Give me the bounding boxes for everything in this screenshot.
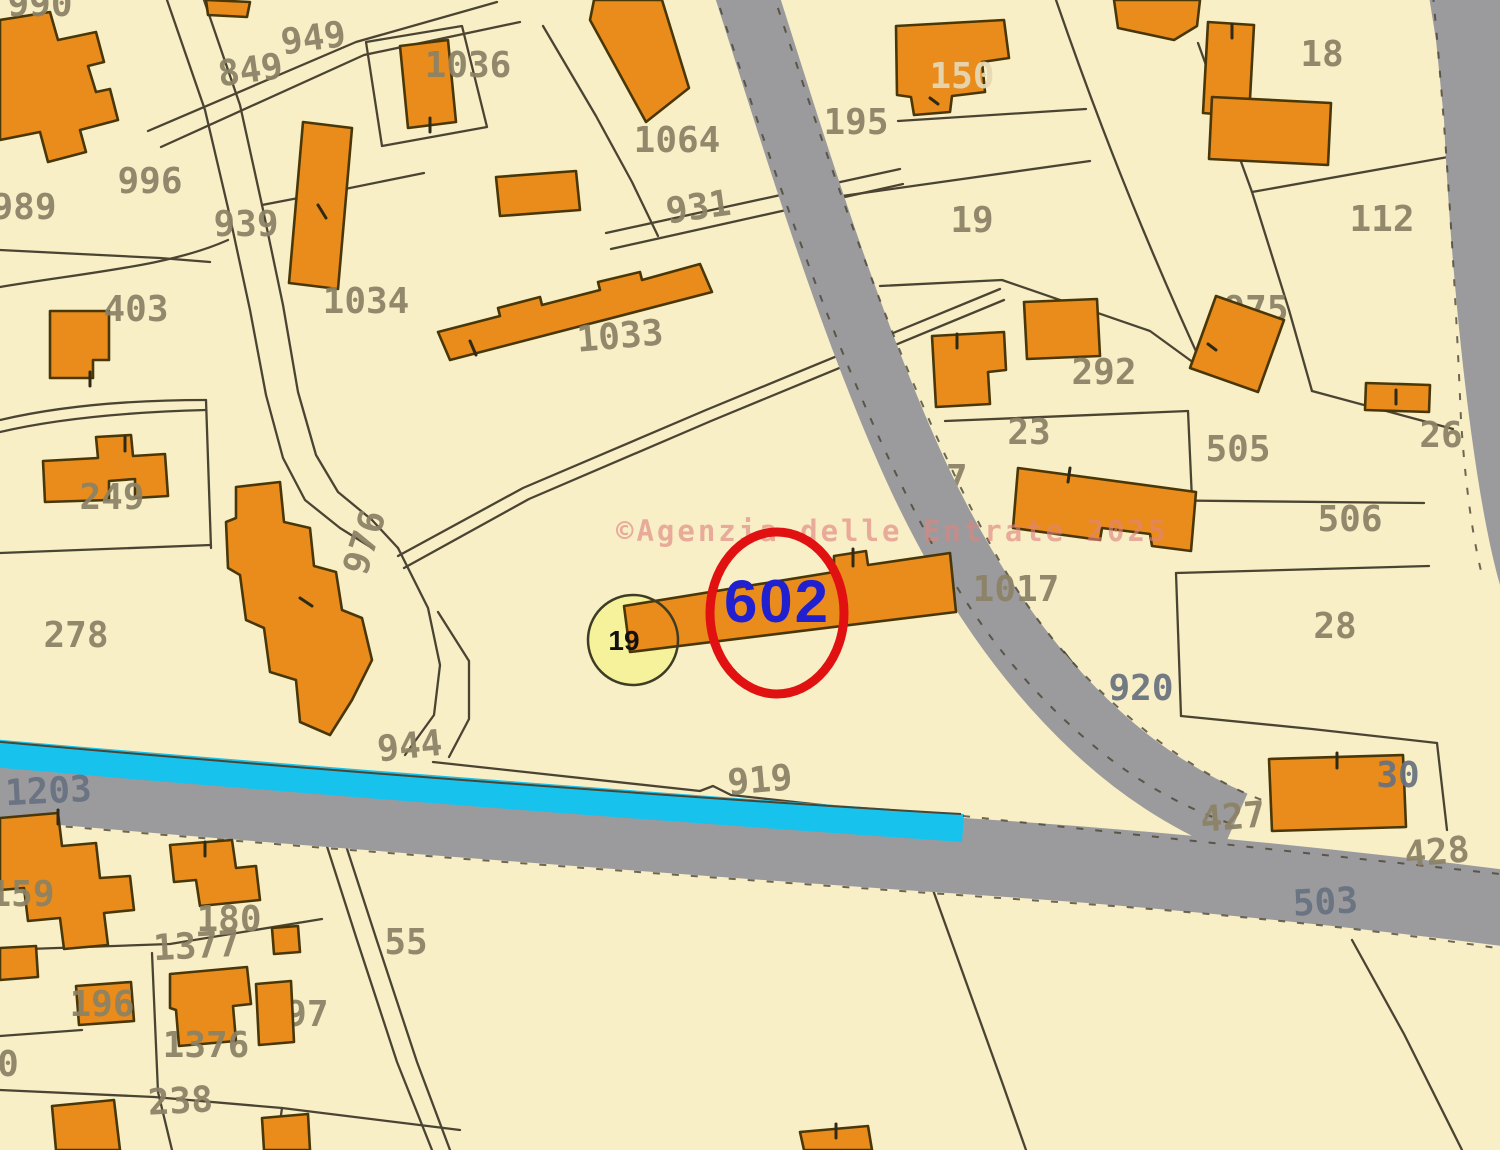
building: [262, 1114, 310, 1150]
building: [52, 1100, 120, 1150]
parcel-label-939: 939: [213, 204, 278, 245]
parcel-label-505: 505: [1205, 429, 1270, 470]
cadastral-map[interactable]: 199751377197927: [0, 0, 1500, 1150]
parcel-label-196: 196: [69, 984, 134, 1025]
parcel-label-1034: 1034: [323, 281, 410, 322]
parcel-label-427: 427: [1199, 794, 1267, 841]
building: [496, 171, 580, 216]
parcel-label-150: 150: [929, 56, 994, 97]
parcel-label-1203: 1203: [4, 769, 93, 814]
parcel-label-1017: 1017: [973, 569, 1060, 610]
parcel-label-30: 30: [1376, 755, 1419, 796]
parcel-label-238: 238: [147, 1079, 214, 1123]
parcel-label-23: 23: [1007, 412, 1050, 453]
parcel-label-26: 26: [1419, 415, 1462, 456]
watermark-text: ©Agenzia delle Entrate 2025: [616, 514, 1168, 548]
parcel-label-18: 18: [1300, 34, 1343, 75]
parcel-label-944: 944: [375, 723, 444, 771]
building: [0, 946, 38, 980]
parcel-label-919: 919: [726, 757, 794, 804]
building: [272, 926, 300, 954]
parcel-label-403: 403: [103, 289, 168, 330]
building: [206, 0, 250, 17]
parcel-label-249: 249: [79, 477, 144, 518]
parcel-label-19: 19: [950, 200, 993, 241]
point-marker-label: 19: [608, 625, 639, 656]
parcel-label-112: 112: [1349, 199, 1414, 240]
parcel-label-180: 180: [196, 899, 261, 940]
parcel-label-0: 0: [0, 1044, 19, 1085]
building: [1209, 97, 1331, 165]
highlighted-parcel-number: 602: [724, 568, 830, 635]
parcel-label-55: 55: [384, 922, 427, 963]
parcel-label-506: 506: [1317, 499, 1382, 540]
parcel-label-503: 503: [1292, 880, 1359, 924]
tick: [1068, 468, 1070, 482]
parcel-label-1064: 1064: [634, 120, 721, 161]
parcel-label-195: 195: [823, 102, 888, 143]
parcel-label-159: 159: [0, 874, 55, 915]
building: [1024, 299, 1100, 359]
parcel-label-920: 920: [1108, 668, 1173, 709]
parcel-label-1033: 1033: [575, 312, 665, 360]
parcel-label-1376: 1376: [163, 1025, 250, 1066]
parcel-label-428: 428: [1403, 829, 1471, 876]
parcel-label-292: 292: [1071, 352, 1136, 393]
parcel-label-996: 996: [117, 161, 182, 202]
building: [256, 981, 294, 1045]
parcel-label-990: 990: [7, 0, 72, 25]
parcel-label-278: 278: [43, 615, 108, 656]
parcel-label-28: 28: [1313, 606, 1356, 647]
parcel-label-989: 989: [0, 187, 57, 228]
parcel-label-1036: 1036: [425, 45, 512, 86]
